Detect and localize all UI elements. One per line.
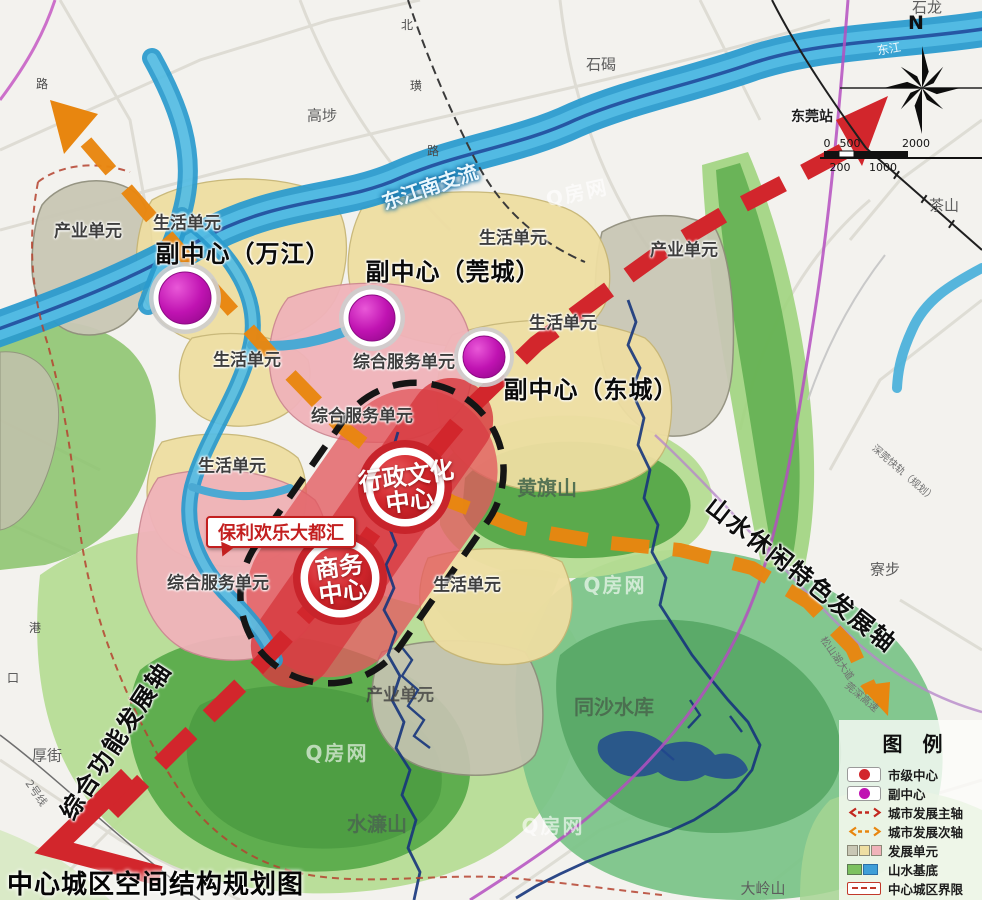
legend-panel: 图 例 市级中心 副中心 城市发展主轴 城市发展次轴 <box>839 720 982 900</box>
boundary-swatch <box>847 881 883 896</box>
scale-number: 2000 <box>902 137 930 150</box>
landscape-base-swatch <box>847 862 883 877</box>
legend-label: 中心城区界限 <box>888 879 963 898</box>
legend-label: 城市发展主轴 <box>888 803 963 822</box>
sub-center-circle-wanjiang <box>149 262 221 334</box>
legend-label: 城市发展次轴 <box>888 822 963 841</box>
secondary-axis-arrow-icon <box>847 825 883 838</box>
legend-label: 发展单元 <box>888 841 938 860</box>
city-center-swatch <box>847 767 883 782</box>
sub-center-circle-dongcheng <box>454 327 514 387</box>
map-title: 中心城区空间结构规划图 <box>7 864 304 900</box>
compass-north-label: N <box>908 12 924 34</box>
planning-map-canvas: 副中心（万江） 副中心（莞城） 副中心（东城） 生活单元 生活单元 生活单元 生… <box>0 0 982 900</box>
legend-item-main-axis: 城市发展主轴 <box>847 804 978 820</box>
legend-title: 图 例 <box>847 728 978 757</box>
legend-item-landscape-base: 山水基底 <box>847 861 978 877</box>
legend-item-development-units: 发展单元 <box>847 842 978 858</box>
legend-label: 副中心 <box>888 784 926 803</box>
legend-item-sub-center: 副中心 <box>847 785 978 801</box>
scale-number: 500 <box>840 137 861 150</box>
legend-item-secondary-axis: 城市发展次轴 <box>847 823 978 839</box>
main-axis-swatch <box>847 805 883 820</box>
legend-label: 市级中心 <box>888 765 938 784</box>
development-units-swatch <box>847 843 883 858</box>
project-callout: 保利欢乐大都汇 <box>206 516 356 548</box>
main-axis-arrow-icon <box>847 806 883 819</box>
scale-number: 200 <box>830 161 851 174</box>
map-graphics <box>0 0 982 900</box>
sub-center-swatch <box>847 786 883 801</box>
scale-number: 1000 <box>869 161 897 174</box>
secondary-axis-swatch <box>847 824 883 839</box>
legend-label: 山水基底 <box>888 860 938 879</box>
city-center-circle-admin-culture <box>358 440 452 534</box>
sub-center-circle-guancheng <box>339 285 405 351</box>
scale-number: 0 <box>824 137 831 150</box>
legend-item-city-center: 市级中心 <box>847 766 978 782</box>
legend-item-boundary: 中心城区界限 <box>847 880 978 896</box>
